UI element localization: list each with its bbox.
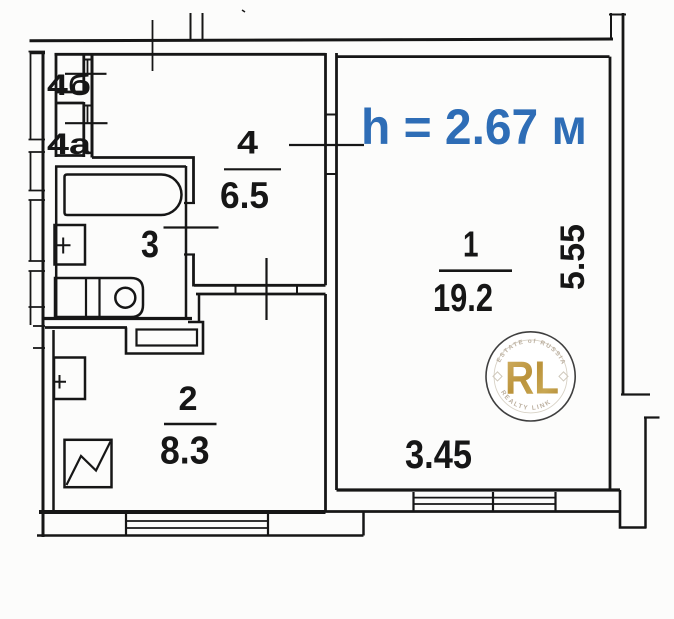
svg-text:RL: RL — [505, 352, 559, 404]
svg-text:3.45: 3.45 — [405, 433, 472, 477]
svg-text:1: 1 — [463, 224, 479, 265]
svg-text:6.5: 6.5 — [220, 175, 269, 216]
svg-text:4б: 4б — [47, 69, 91, 102]
svg-text:8.3: 8.3 — [160, 430, 210, 473]
svg-text:19.2: 19.2 — [433, 277, 493, 320]
svg-text:4а: 4а — [47, 128, 91, 161]
svg-text:2: 2 — [179, 380, 198, 418]
svg-text:h = 2.67 м: h = 2.67 м — [361, 99, 587, 155]
svg-text:4: 4 — [237, 125, 258, 161]
svg-text:5.55: 5.55 — [554, 224, 592, 290]
svg-text:3: 3 — [141, 224, 159, 266]
